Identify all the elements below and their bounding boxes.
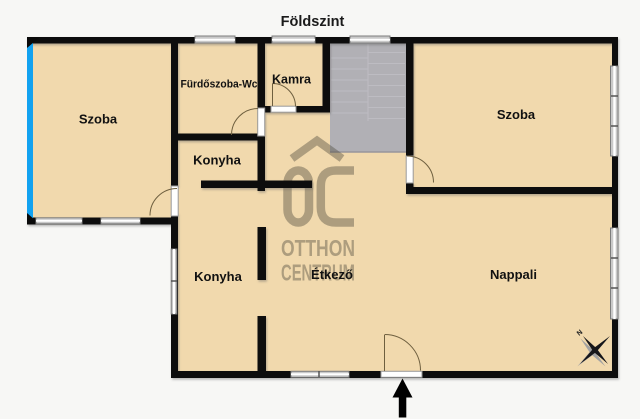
svg-text:Fürdőszoba-Wc: Fürdőszoba-Wc xyxy=(181,79,258,91)
svg-text:OTTHON: OTTHON xyxy=(281,235,355,261)
svg-text:Kamra: Kamra xyxy=(272,73,312,87)
svg-text:Szoba: Szoba xyxy=(497,107,536,122)
svg-text:Étkező: Étkező xyxy=(311,267,353,282)
svg-text:Szoba: Szoba xyxy=(79,112,118,127)
svg-text:Konyha: Konyha xyxy=(194,269,242,284)
svg-text:Konyha: Konyha xyxy=(193,153,241,168)
svg-text:Földszint: Földszint xyxy=(281,14,345,30)
svg-text:Nappali: Nappali xyxy=(490,267,537,282)
